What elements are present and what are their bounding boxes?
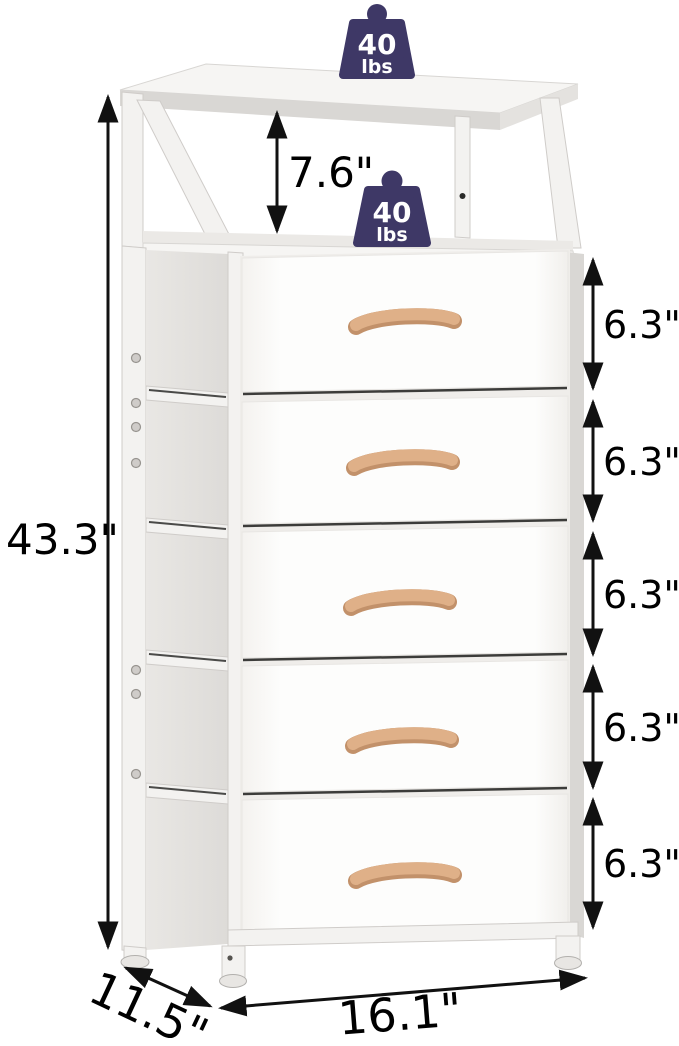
frame-back-left-post-top — [122, 92, 143, 248]
drawer-1-height-label: 6.3" — [603, 303, 679, 347]
drawer-5-front — [242, 794, 568, 930]
leg-screw — [227, 955, 232, 960]
dresser-illustration — [120, 64, 584, 988]
side-fabric-panel — [146, 250, 228, 950]
drawer-3-height-label: 6.3" — [603, 573, 679, 617]
frame-back-left-post — [122, 246, 146, 952]
drawer-5-height-label: 6.3" — [603, 842, 679, 886]
frame-front-left-slanted-leg — [137, 100, 232, 240]
depth-dimension-label: 11.5" — [81, 961, 216, 1046]
drawer-4-height-label: 6.3" — [603, 706, 679, 750]
shelf-height-dimension-label: 7.6" — [288, 148, 374, 197]
back-left-foot — [121, 956, 149, 969]
weight-capacity-shelf-unit: lbs — [376, 224, 407, 246]
front-left-leg — [222, 946, 245, 978]
height-dimension-label: 43.3" — [6, 515, 119, 564]
weight-capacity-top-unit: lbs — [361, 56, 392, 78]
front-right-foot — [555, 957, 582, 970]
screw-hole — [460, 193, 466, 199]
frame-back-right-post — [455, 116, 470, 238]
drawer-4-front — [242, 660, 568, 792]
weight-capacity-top: 40 lbs — [343, 4, 411, 78]
drawer-2-height-label: 6.3" — [603, 440, 679, 484]
front-left-foot — [220, 975, 247, 988]
width-dimension-label: 16.1" — [336, 982, 463, 1046]
dresser-diagram: 40 lbs 40 lbs 43.3" 7.6" 6.3" 6.3" 6.3" … — [0, 0, 679, 1046]
frame-front-right-slanted-leg — [540, 98, 581, 248]
product-dimension-image: 40 lbs 40 lbs 43.3" 7.6" 6.3" 6.3" 6.3" … — [0, 0, 679, 1046]
